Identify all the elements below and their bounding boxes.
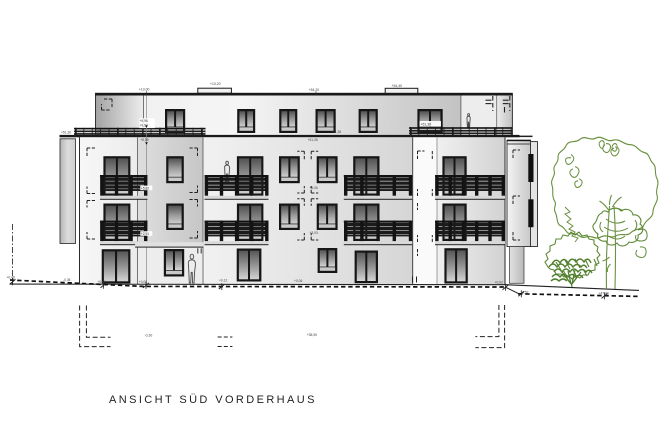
svg-text:+0,48: +0,48: [7, 275, 16, 279]
svg-text:+2,91: +2,91: [141, 232, 150, 236]
svg-text:-0,36: -0,36: [63, 278, 71, 282]
svg-text:-0,30: -0,30: [145, 334, 153, 338]
svg-text:+51,05: +51,05: [308, 138, 318, 142]
svg-text:+13,20: +13,20: [210, 82, 221, 86]
svg-text:+8,85: +8,85: [140, 138, 149, 142]
svg-text:+0,06: +0,06: [294, 279, 303, 283]
svg-text:+51,30: +51,30: [421, 123, 432, 127]
svg-text:+0,12: +0,12: [219, 278, 228, 282]
svg-text:+5,82: +5,82: [141, 186, 150, 190]
svg-text:+38,90: +38,90: [307, 333, 318, 337]
svg-text:+13,00: +13,00: [139, 88, 150, 92]
svg-text:+0,50: +0,50: [98, 280, 107, 284]
svg-text:+9,96: +9,96: [140, 119, 149, 123]
svg-text:+51,36: +51,36: [331, 130, 341, 134]
svg-text:+0,00: +0,00: [139, 280, 148, 284]
svg-text:-0,52: -0,52: [521, 290, 529, 294]
svg-text:+0,02: +0,02: [495, 281, 504, 285]
svg-text:ANSICHT SÜD VORDERHAUS: ANSICHT SÜD VORDERHAUS: [109, 394, 317, 406]
svg-text:+54,40: +54,40: [392, 84, 403, 88]
svg-text:+51,30: +51,30: [61, 131, 71, 135]
svg-text:+47,40: +47,40: [599, 291, 609, 295]
svg-text:+54,20: +54,20: [309, 88, 320, 92]
